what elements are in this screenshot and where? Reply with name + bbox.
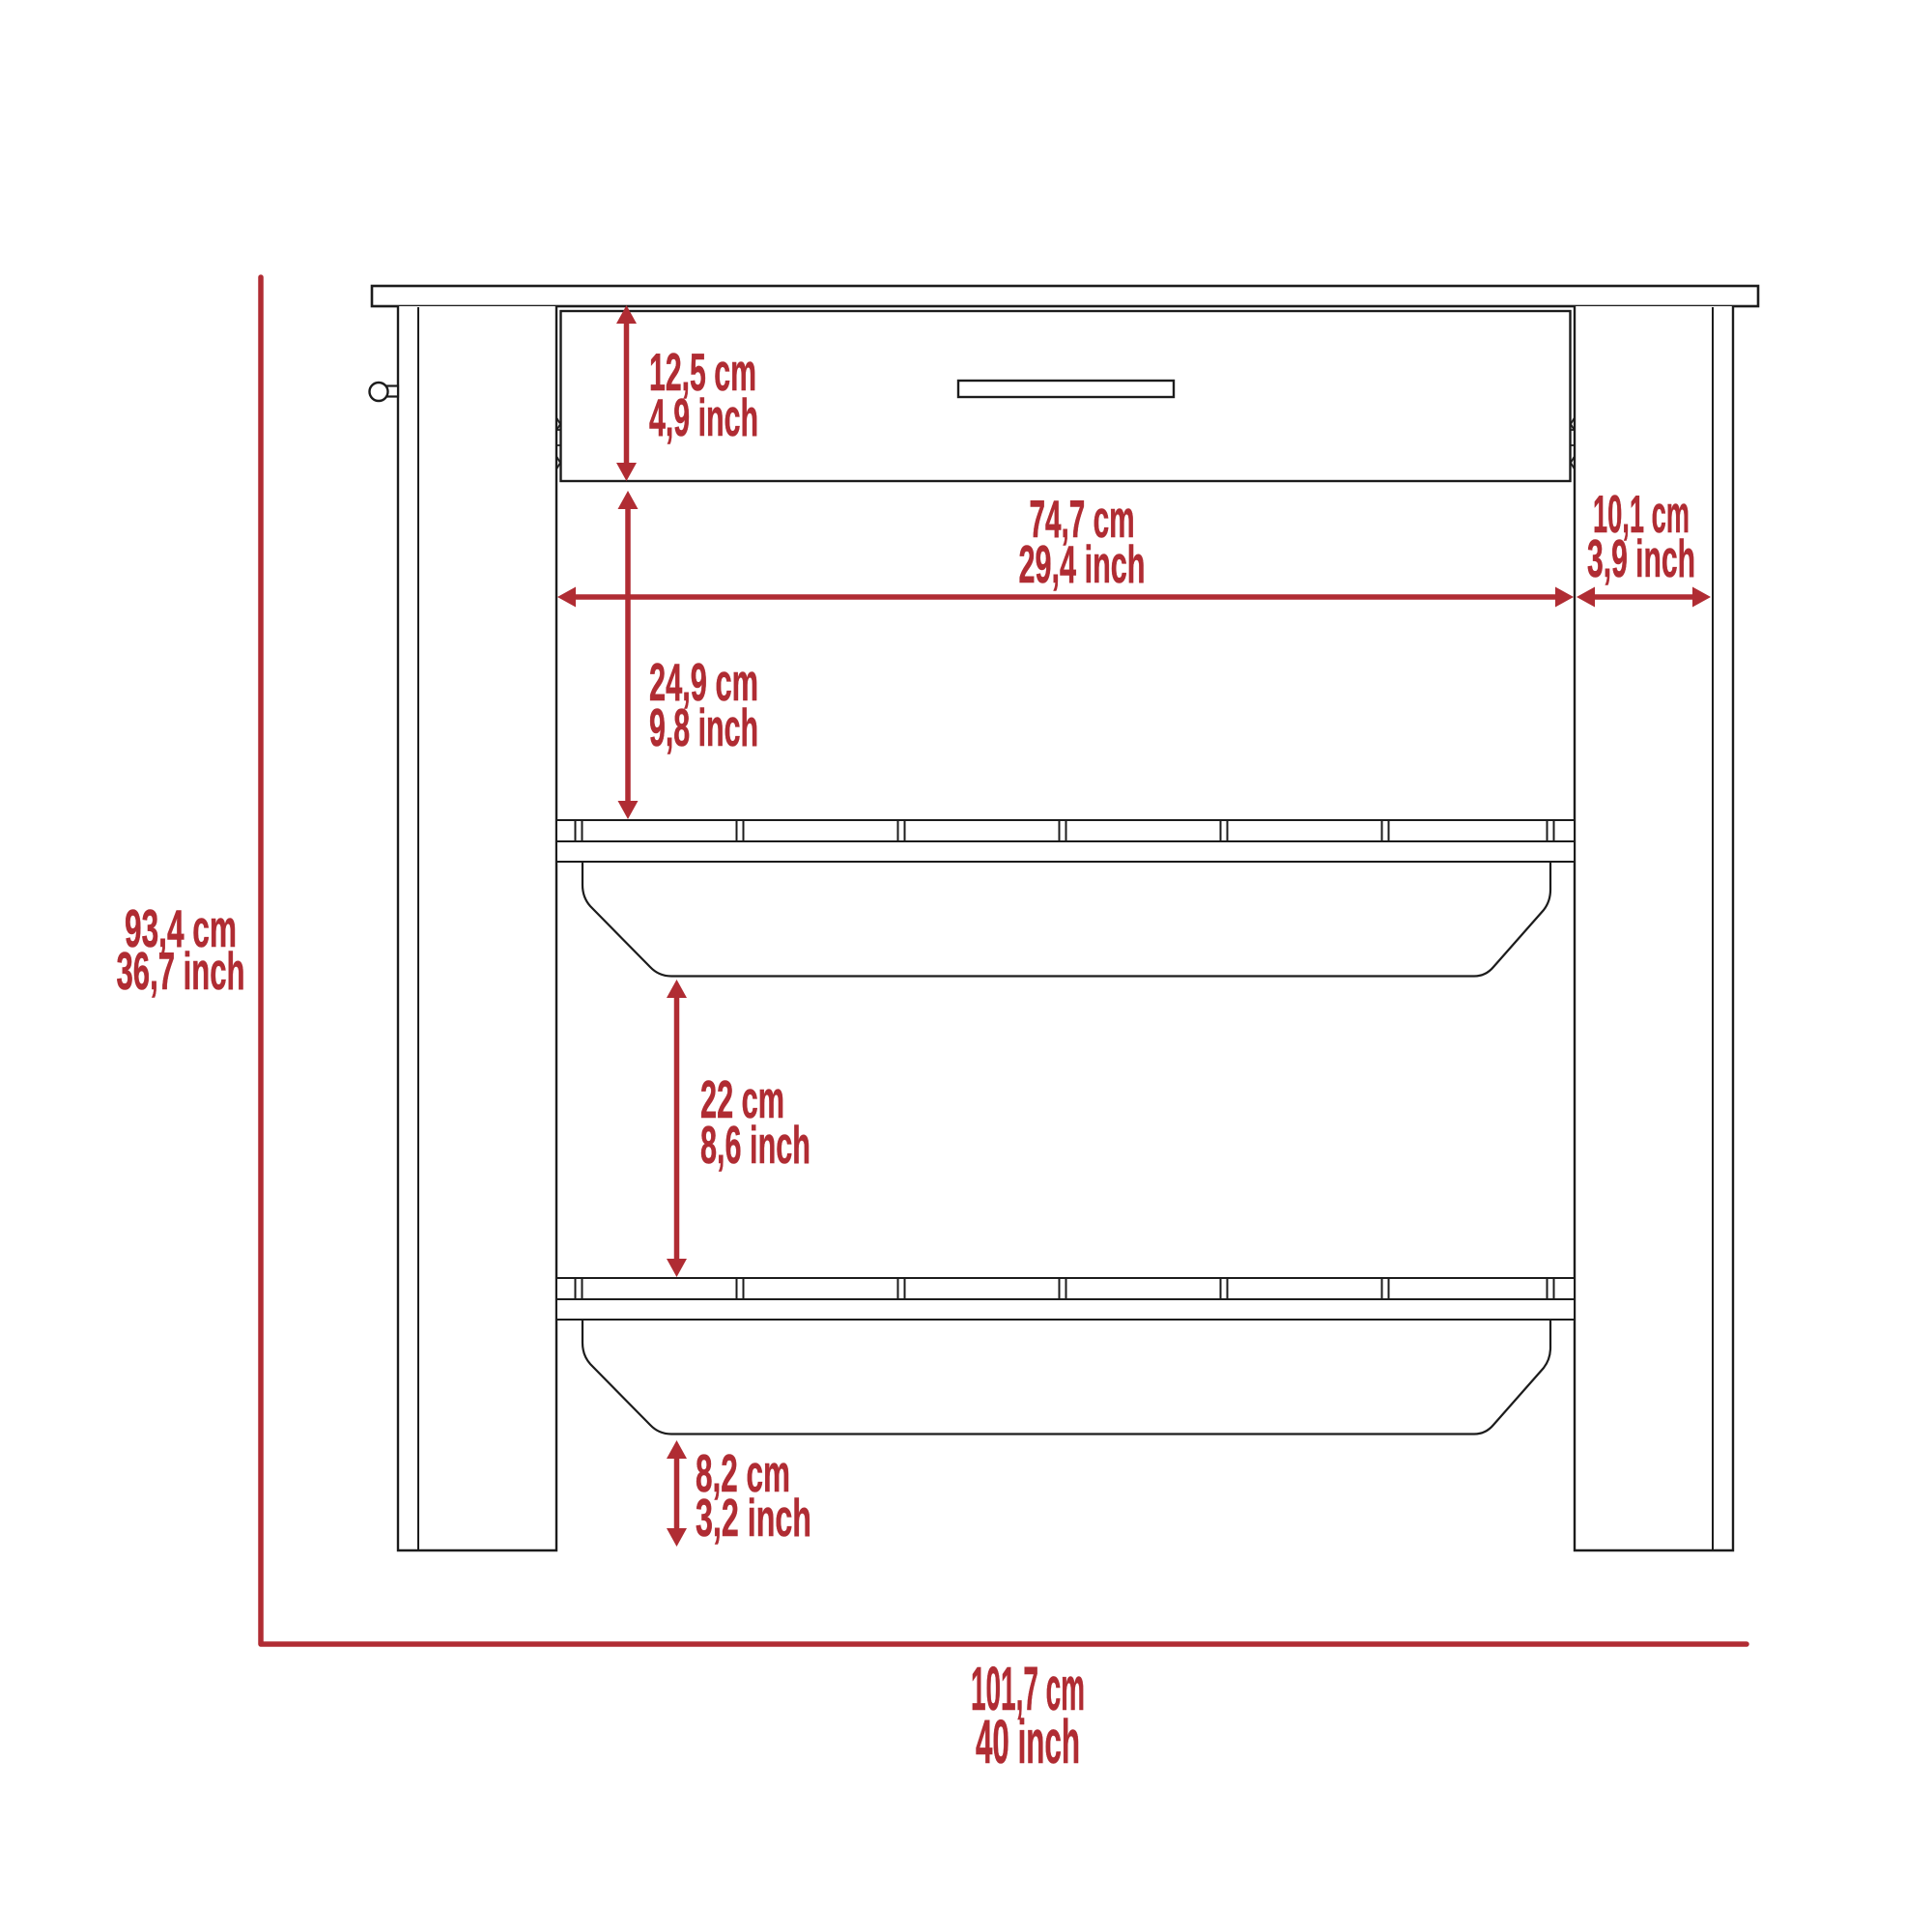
svg-text:3,2 inch: 3,2 inch bbox=[696, 1488, 811, 1548]
svg-text:36,7 inch: 36,7 inch bbox=[117, 941, 245, 1001]
svg-text:3,9 inch: 3,9 inch bbox=[1587, 528, 1695, 588]
svg-text:29,4 inch: 29,4 inch bbox=[1019, 534, 1146, 594]
svg-text:40 inch: 40 inch bbox=[976, 1707, 1080, 1776]
svg-text:4,9 inch: 4,9 inch bbox=[649, 387, 758, 447]
svg-text:9,8 inch: 9,8 inch bbox=[649, 697, 758, 757]
svg-text:8,6 inch: 8,6 inch bbox=[700, 1115, 810, 1175]
